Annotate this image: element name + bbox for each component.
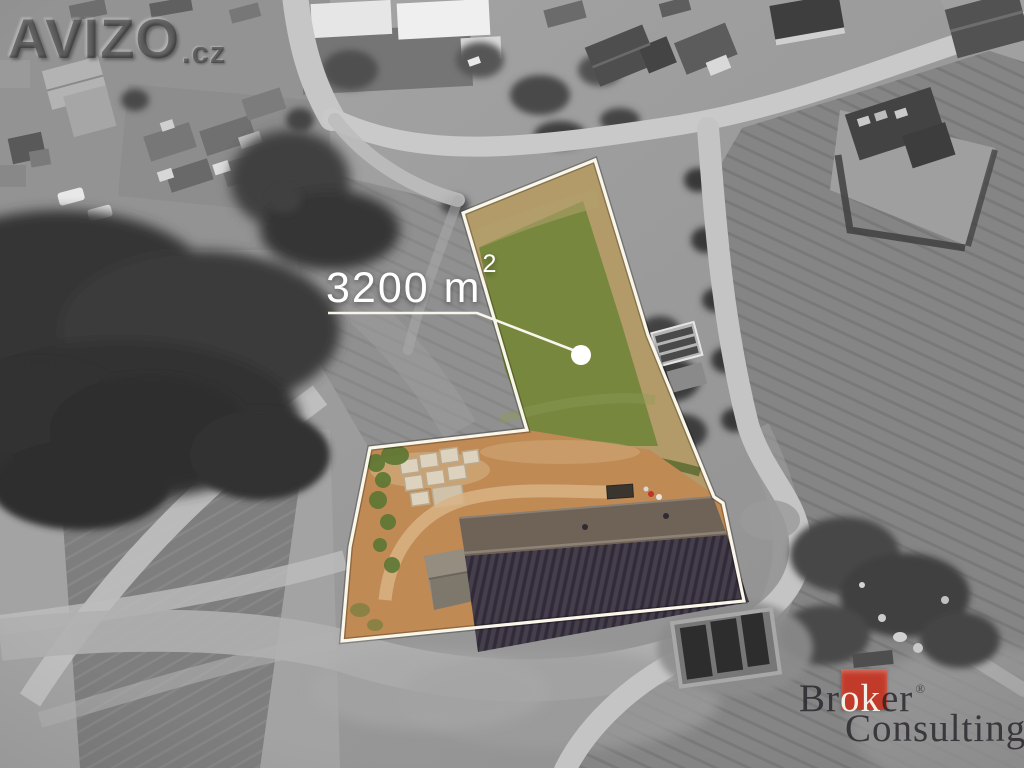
aerial-scene — [0, 0, 1024, 768]
trailer — [607, 484, 634, 499]
area-marker-dot — [571, 345, 591, 365]
foundations — [672, 609, 780, 686]
aerial-photo: AVIZO.cz 3200 m2 Broker® Consulting — [0, 0, 1024, 768]
